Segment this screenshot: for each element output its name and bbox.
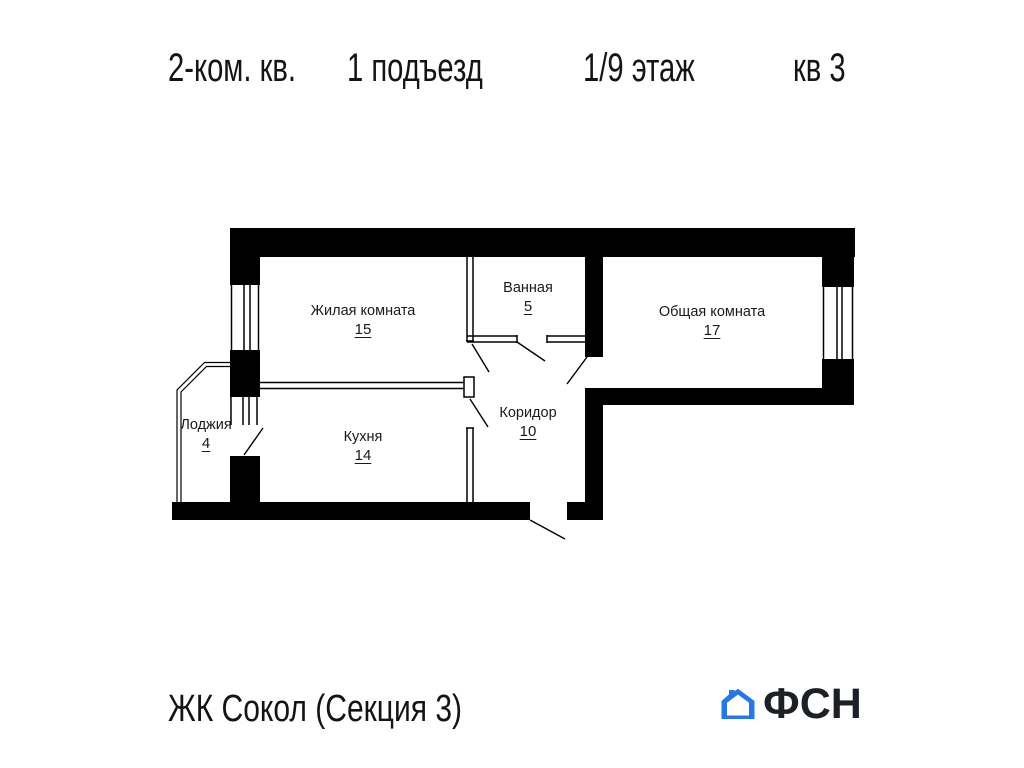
living-room-window [232, 285, 259, 350]
room-name: Кухня [344, 428, 383, 446]
room-area: 10 [520, 422, 537, 441]
entrance-door-leaf [530, 520, 565, 539]
floor-plan [0, 0, 1024, 768]
room-area: 5 [524, 297, 532, 316]
kitchen-door-leaf [470, 399, 488, 427]
room-area: 4 [202, 434, 210, 453]
room-name: Общая комната [659, 303, 765, 321]
room-label-loggia: Лоджия 4 [180, 416, 231, 453]
right-wall-lower [822, 359, 854, 405]
room-name: Лоджия [180, 416, 231, 434]
room-label-bathroom: Ванная 5 [503, 279, 553, 316]
corridor-right-wall-upper [585, 257, 603, 357]
common-room-bottom-wall [585, 388, 852, 405]
bottom-wall-left [172, 502, 530, 520]
common-room-door-leaf [567, 357, 587, 384]
left-wall-lower [230, 456, 260, 505]
common-room-window [824, 287, 853, 359]
room-label-kitchen: Кухня 14 [344, 428, 383, 465]
room-area: 15 [355, 320, 372, 339]
house-icon [720, 688, 756, 720]
bathroom-door-leaf [517, 342, 545, 361]
corridor-right-wall-lower [585, 388, 603, 502]
project-name: ЖК Сокол (Секция 3) [168, 690, 462, 728]
left-wall-upper [230, 257, 260, 285]
room-label-common: Общая комната 17 [659, 303, 765, 340]
left-wall-middle [230, 350, 260, 397]
living-room-door-leaf [472, 344, 489, 372]
exterior-walls [172, 228, 855, 520]
room-name: Ванная [503, 279, 553, 297]
room-name: Жилая комната [311, 302, 416, 320]
room-name: Коридор [499, 404, 556, 422]
room-label-living: Жилая комната 15 [311, 302, 416, 339]
fsn-logo: ФСН [720, 687, 860, 723]
room-label-corridor: Коридор 10 [499, 404, 556, 441]
loggia-door-leaf [244, 428, 263, 455]
kitchen-window [231, 397, 257, 425]
logo-text: ФСН [763, 687, 862, 721]
room-area: 14 [355, 446, 372, 465]
bottom-wall-right-stub [567, 502, 603, 520]
room-area: 17 [704, 321, 721, 340]
top-wall [230, 228, 855, 257]
right-wall-upper [822, 257, 854, 287]
